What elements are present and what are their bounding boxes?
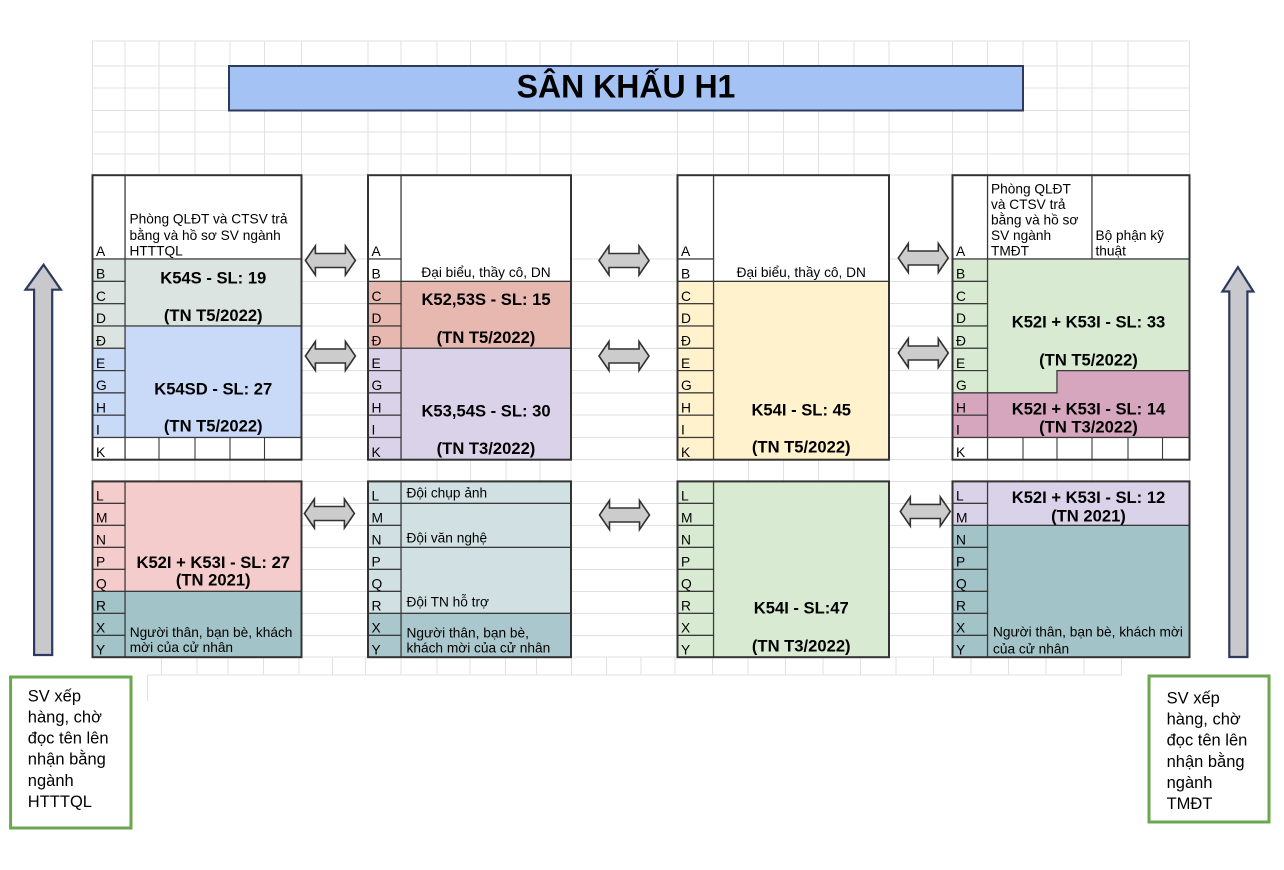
svg-text:Người thân, bạn bè,: Người thân, bạn bè, [407,626,529,641]
svg-text:H: H [956,400,966,415]
svg-text:I: I [956,423,960,438]
svg-text:mời của cử nhân: mời của cử nhân [130,640,233,655]
svg-text:B: B [96,267,105,282]
svg-text:Y: Y [96,642,105,657]
svg-text:K54S - SL: 19: K54S - SL: 19 [160,269,266,288]
svg-text:G: G [372,378,383,393]
svg-text:SÂN KHẤU H1: SÂN KHẤU H1 [517,69,736,105]
svg-text:D: D [372,311,382,326]
svg-text:ngành: ngành [1167,774,1213,792]
svg-text:K54SD - SL: 27: K54SD - SL: 27 [154,379,272,398]
svg-text:(TN T5/2022): (TN T5/2022) [1039,350,1138,369]
svg-text:SV xếp: SV xếp [28,687,81,705]
svg-text:TMĐT: TMĐT [1167,795,1213,813]
svg-text:Q: Q [96,577,107,592]
svg-text:I: I [681,423,685,438]
svg-text:Đội văn nghệ: Đội văn nghệ [407,530,488,545]
svg-text:bằng và hồ sơ: bằng và hồ sơ [991,213,1078,228]
svg-text:L: L [956,489,964,504]
svg-text:M: M [96,511,108,526]
svg-text:R: R [681,599,691,614]
svg-text:K52I + K53I - SL: 27: K52I + K53I - SL: 27 [136,553,290,572]
svg-text:(TN T5/2022): (TN T5/2022) [164,306,263,325]
svg-text:hàng, chờ: hàng, chờ [28,709,102,727]
svg-text:đọc tên lên: đọc tên lên [1167,732,1248,750]
svg-text:A: A [956,244,966,259]
svg-text:E: E [681,356,690,371]
svg-text:K52I + K53I - SL: 14: K52I + K53I - SL: 14 [1012,400,1166,419]
svg-text:(TN T3/2022): (TN T3/2022) [752,637,851,656]
svg-text:D: D [956,311,966,326]
svg-text:Q: Q [681,577,692,592]
svg-text:K53,54S - SL: 30: K53,54S - SL: 30 [421,401,550,420]
svg-text:(TN 2021): (TN 2021) [176,571,251,590]
svg-text:R: R [96,599,106,614]
svg-text:và CTSV trả: và CTSV trả [991,197,1066,212]
svg-text:H: H [681,400,691,415]
svg-text:K54I - SL:47: K54I - SL:47 [754,599,849,618]
svg-text:K: K [372,445,382,460]
svg-text:SV xếp: SV xếp [1167,690,1220,708]
svg-text:C: C [681,289,691,304]
svg-text:Đ: Đ [372,334,382,349]
svg-text:(TN 2021): (TN 2021) [1051,506,1126,525]
svg-text:M: M [956,511,968,526]
svg-text:E: E [956,356,965,371]
svg-text:khách mời của cử nhân: khách mời của cử nhân [407,641,551,656]
svg-text:Đ: Đ [96,334,106,349]
svg-text:K: K [96,445,106,460]
svg-text:(TN T5/2022): (TN T5/2022) [164,417,263,436]
svg-text:D: D [681,311,691,326]
svg-text:I: I [96,423,100,438]
svg-text:P: P [372,555,381,570]
svg-text:P: P [681,555,690,570]
svg-text:HTTTQL: HTTTQL [130,243,184,258]
svg-text:X: X [681,621,690,636]
svg-text:A: A [372,244,382,259]
svg-text:Đ: Đ [956,334,966,349]
svg-text:D: D [96,311,106,326]
svg-text:C: C [956,289,966,304]
svg-text:đọc tên lên: đọc tên lên [28,730,109,748]
svg-text:G: G [681,378,692,393]
svg-text:X: X [372,621,381,636]
svg-text:E: E [372,356,381,371]
svg-text:Đội chụp ảnh: Đội chụp ảnh [407,486,488,501]
svg-text:ngành: ngành [28,772,74,790]
svg-text:Đại biểu, thầy cô, DN: Đại biểu, thầy cô, DN [737,265,866,280]
svg-text:(TN T5/2022): (TN T5/2022) [437,328,536,347]
svg-text:R: R [372,599,382,614]
svg-text:SV ngành: SV ngành [991,228,1051,243]
svg-text:P: P [96,555,105,570]
svg-text:C: C [96,289,106,304]
svg-text:Q: Q [372,577,383,592]
svg-text:HTTTQL: HTTTQL [28,793,92,811]
svg-text:X: X [96,621,105,636]
svg-text:K: K [956,445,966,460]
svg-text:N: N [956,533,966,548]
svg-text:hàng, chờ: hàng, chờ [1167,711,1241,729]
svg-text:I: I [372,423,376,438]
svg-text:Y: Y [956,642,965,657]
svg-text:G: G [956,378,967,393]
svg-text:M: M [372,511,384,526]
svg-text:E: E [96,356,105,371]
svg-text:K52,53S - SL: 15: K52,53S - SL: 15 [421,290,550,309]
svg-text:G: G [96,378,107,393]
svg-text:Đại biểu, thầy cô, DN: Đại biểu, thầy cô, DN [421,265,550,280]
svg-text:P: P [956,555,965,570]
svg-text:Người thân, bạn bè, khách: Người thân, bạn bè, khách [130,625,293,640]
svg-text:H: H [372,400,382,415]
svg-text:(TN T5/2022): (TN T5/2022) [752,438,851,457]
svg-text:Phòng QLĐT: Phòng QLĐT [991,182,1072,197]
svg-text:Bộ phận kỹ: Bộ phận kỹ [1096,228,1165,243]
svg-text:L: L [372,489,380,504]
svg-text:A: A [681,244,691,259]
svg-text:bằng và hồ sơ SV ngành: bằng và hồ sơ SV ngành [130,228,281,243]
svg-text:Y: Y [372,642,381,657]
svg-text:Y: Y [681,642,690,657]
svg-text:K54I - SL: 45: K54I - SL: 45 [751,400,851,419]
svg-text:Người thân, bạn bè, khách mời: Người thân, bạn bè, khách mời [993,625,1183,640]
svg-text:của cử nhân: của cử nhân [993,641,1069,656]
svg-text:L: L [96,489,104,504]
svg-text:H: H [96,400,106,415]
svg-text:nhận bằng: nhận bằng [1167,752,1245,771]
svg-text:M: M [681,511,693,526]
svg-text:X: X [956,621,965,636]
svg-text:B: B [372,267,381,282]
svg-text:N: N [372,533,382,548]
svg-text:TMĐT: TMĐT [991,244,1030,259]
svg-text:Đội TN hỗ trợ: Đội TN hỗ trợ [407,594,490,609]
svg-text:nhận bằng: nhận bằng [28,750,106,769]
svg-text:K: K [681,445,691,460]
svg-text:N: N [681,533,691,548]
svg-text:L: L [681,489,689,504]
svg-text:thuật: thuật [1096,244,1127,259]
svg-text:(TN T3/2022): (TN T3/2022) [1039,418,1138,437]
svg-text:(TN T3/2022): (TN T3/2022) [437,439,536,458]
svg-text:Đ: Đ [681,334,691,349]
svg-text:A: A [96,244,106,259]
svg-text:Q: Q [956,577,967,592]
svg-text:R: R [956,599,966,614]
svg-text:K52I + K53I - SL: 33: K52I + K53I - SL: 33 [1012,312,1166,331]
svg-text:B: B [681,267,690,282]
svg-text:B: B [956,267,965,282]
svg-text:N: N [96,533,106,548]
svg-text:Phòng QLĐT và CTSV trả: Phòng QLĐT và CTSV trả [130,212,288,227]
svg-text:K52I + K53I - SL: 12: K52I + K53I - SL: 12 [1012,488,1166,507]
svg-text:C: C [372,289,382,304]
